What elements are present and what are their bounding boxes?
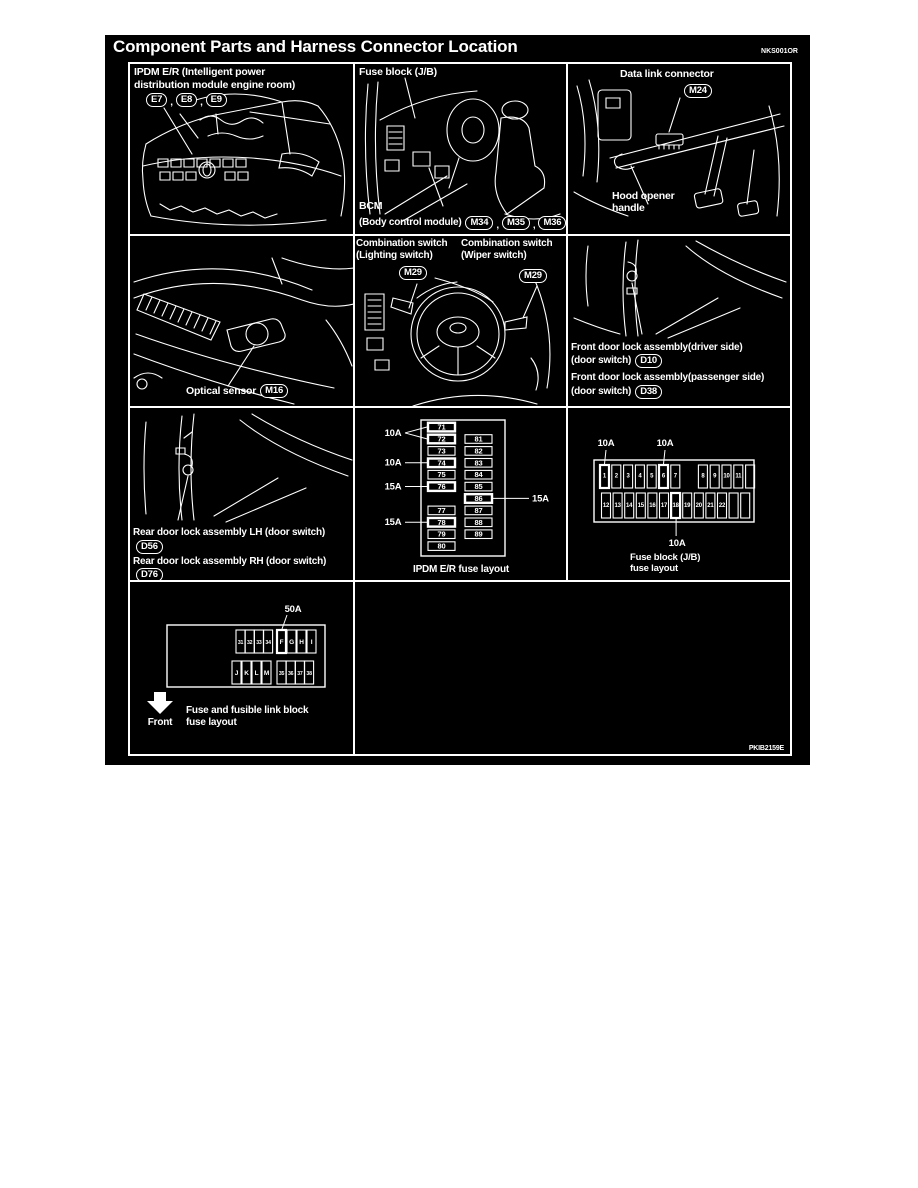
connector-pill-d56: D56: [136, 540, 163, 554]
svg-text:87: 87: [475, 506, 483, 515]
figure-component-location: Component Parts and Harness Connector Lo…: [105, 35, 810, 765]
svg-text:G: G: [289, 639, 294, 646]
front-door-driver-label: Front door lock assembly(driver side): [571, 342, 743, 354]
svg-text:88: 88: [475, 518, 483, 527]
svg-text:10A: 10A: [669, 538, 686, 549]
svg-text:Fuse block (J/B): Fuse block (J/B): [630, 552, 700, 563]
panel-fusible-link: 31323334FGHIJKLM3536373850AFrontFuse and…: [130, 582, 355, 754]
svg-text:85: 85: [475, 482, 483, 491]
cowl-illustration: [130, 236, 355, 406]
front-door-passenger-row: (door switch) D38: [571, 385, 662, 399]
rear-door-rh-label: Rear door lock assembly RH (door switch): [133, 556, 326, 568]
svg-text:34: 34: [265, 640, 271, 646]
svg-text:73: 73: [438, 446, 446, 455]
panel-ipdm-fuse-layout: 7172817382748375847685867787788879898010…: [355, 408, 568, 580]
svg-text:82: 82: [475, 446, 483, 455]
label-line: (Lighting switch): [356, 250, 447, 262]
label-line: distribution module engine room): [134, 79, 295, 92]
rear-door-lh-label: Rear door lock assembly LH (door switch): [133, 527, 325, 539]
ipdm-fuse-diagram: 7172817382748375847685867787788879898010…: [355, 408, 566, 580]
panel-combination-switch: Combination switch (Lighting switch) Com…: [355, 236, 568, 406]
svg-text:37: 37: [297, 671, 303, 677]
svg-text:4: 4: [638, 474, 642, 480]
door-switch-label: (door switch): [571, 386, 631, 398]
bcm-label: BCM: [359, 200, 382, 213]
comma-separator: ,: [496, 221, 499, 230]
label-line: Combination switch: [356, 238, 447, 250]
svg-text:8: 8: [701, 474, 705, 480]
svg-text:15A: 15A: [385, 482, 402, 493]
connector-pill-m36: M36: [538, 216, 566, 230]
svg-text:10A: 10A: [385, 428, 402, 439]
svg-text:10A: 10A: [598, 438, 615, 449]
label-line: (Wiper switch): [461, 250, 552, 262]
svg-text:50A: 50A: [285, 604, 302, 615]
svg-text:78: 78: [438, 518, 446, 527]
panel-ipdm-er: IPDM E/R (Intelligent power distribution…: [130, 64, 355, 234]
svg-text:3: 3: [627, 474, 631, 480]
lighting-switch-label: Combination switch (Lighting switch): [356, 238, 447, 262]
svg-text:22: 22: [719, 503, 726, 509]
doc-code: NKS001OR: [761, 48, 798, 55]
front-door-illustration: [568, 236, 790, 340]
svg-text:83: 83: [475, 458, 483, 467]
svg-text:74: 74: [438, 458, 447, 467]
svg-text:I: I: [311, 639, 313, 646]
svg-text:76: 76: [438, 482, 446, 491]
rear-door-illustration: [130, 408, 355, 526]
optical-sensor-label: Optical sensor: [186, 385, 256, 398]
grid-row-2: Optical sensor M16: [130, 236, 790, 408]
panel-empty: PKIB2159E: [355, 582, 790, 754]
svg-text:15A: 15A: [532, 493, 549, 504]
svg-text:10A: 10A: [657, 438, 674, 449]
fusible-link-diagram: 31323334FGHIJKLM3536373850AFrontFuse and…: [130, 582, 353, 754]
front-door-driver-row: (door switch) D10: [571, 354, 662, 368]
svg-text:M: M: [264, 670, 269, 677]
svg-text:J: J: [235, 670, 239, 677]
fuse-block-label: Fuse block (J/B): [359, 66, 437, 79]
svg-text:5: 5: [650, 474, 654, 480]
connector-pill-wiper: M29: [519, 269, 547, 283]
bcm-row: (Body control module) M34,M35,M36: [359, 216, 566, 230]
svg-text:86: 86: [475, 494, 483, 503]
svg-text:35: 35: [279, 671, 285, 677]
svg-text:Front: Front: [148, 717, 173, 728]
connector-pill-m35: M35: [502, 216, 530, 230]
label-line: handle: [612, 202, 675, 215]
svg-text:2: 2: [615, 474, 619, 480]
ipdm-label: IPDM E/R (Intelligent power distribution…: [134, 66, 295, 91]
pedal-area-illustration: [568, 64, 790, 234]
svg-text:36: 36: [288, 671, 294, 677]
label-line: IPDM E/R (Intelligent power: [134, 66, 295, 79]
panel-rear-door-lock: Rear door lock assembly LH (door switch)…: [130, 408, 355, 580]
svg-text:84: 84: [475, 470, 484, 479]
jb-fuse-diagram: 1234567891011121314151617181920212210A10…: [568, 408, 790, 580]
panel-front-door-lock: Front door lock assembly(driver side) (d…: [568, 236, 790, 406]
svg-text:31: 31: [238, 640, 244, 646]
svg-text:15A: 15A: [385, 517, 402, 528]
svg-text:81: 81: [475, 435, 483, 444]
connector-pill-lighting: M29: [399, 266, 427, 280]
svg-text:15: 15: [638, 503, 645, 509]
svg-text:80: 80: [438, 542, 446, 551]
svg-text:13: 13: [614, 503, 621, 509]
svg-text:20: 20: [696, 503, 703, 509]
connector-pill-d10: D10: [635, 354, 662, 368]
svg-text:F: F: [280, 639, 284, 646]
svg-text:K: K: [244, 670, 249, 677]
comma-separator: ,: [200, 98, 203, 107]
connector-pill-m16: M16: [260, 384, 288, 398]
svg-text:11: 11: [735, 474, 742, 480]
connector-pill-m34: M34: [465, 216, 493, 230]
svg-text:Fuse and fusible link block: Fuse and fusible link block: [186, 705, 309, 716]
svg-text:fuse layout: fuse layout: [630, 563, 679, 574]
comma-separator: ,: [170, 98, 173, 107]
bcm-connector-pills: M34,M35,M36: [465, 216, 566, 230]
svg-text:19: 19: [684, 503, 691, 509]
svg-text:9: 9: [713, 474, 717, 480]
svg-text:18: 18: [672, 503, 679, 509]
figure-title: Component Parts and Harness Connector Lo…: [113, 37, 518, 57]
svg-text:L: L: [255, 670, 259, 677]
svg-text:77: 77: [438, 506, 446, 515]
panel-grid: IPDM E/R (Intelligent power distribution…: [128, 62, 792, 756]
svg-text:21: 21: [707, 503, 714, 509]
grid-row-4: 31323334FGHIJKLM3536373850AFrontFuse and…: [130, 582, 790, 754]
svg-text:7: 7: [674, 474, 678, 480]
svg-text:89: 89: [475, 530, 483, 539]
svg-text:16: 16: [649, 503, 656, 509]
svg-text:10A: 10A: [385, 458, 402, 469]
panel-data-link: Data link connector M24 Hood opener hand…: [568, 64, 790, 234]
door-switch-label: (door switch): [571, 355, 631, 367]
grid-row-1: IPDM E/R (Intelligent power distribution…: [130, 64, 790, 236]
panel-fuse-block-interior: Fuse block (J/B) BCM (Body control modul…: [355, 64, 568, 234]
svg-text:79: 79: [438, 530, 446, 539]
svg-text:6: 6: [662, 474, 666, 480]
svg-text:17: 17: [661, 503, 668, 509]
svg-text:H: H: [299, 639, 304, 646]
svg-text:10: 10: [723, 474, 730, 480]
ipdm-connector-pills: E7,E8,E9: [146, 93, 227, 107]
panel-jb-fuse-layout: 1234567891011121314151617181920212210A10…: [568, 408, 790, 580]
svg-text:38: 38: [306, 671, 312, 677]
interior-illustration: [355, 64, 568, 234]
svg-text:75: 75: [438, 470, 446, 479]
svg-text:fuse layout: fuse layout: [186, 717, 237, 728]
comma-separator: ,: [533, 221, 536, 230]
figure-code: PKIB2159E: [749, 745, 784, 753]
svg-text:32: 32: [247, 640, 253, 646]
connector-pill-e9: E9: [206, 93, 227, 107]
label-line: Combination switch: [461, 238, 552, 250]
connector-pill-m24: M24: [684, 84, 712, 98]
connector-pill-e7: E7: [146, 93, 167, 107]
svg-text:IPDM E/R fuse layout: IPDM E/R fuse layout: [413, 564, 510, 575]
hood-opener-label: Hood opener handle: [612, 190, 675, 215]
svg-text:1: 1: [603, 474, 607, 480]
svg-text:12: 12: [603, 503, 610, 509]
label-line: Hood opener: [612, 190, 675, 203]
bcm-sub-label: (Body control module): [359, 217, 461, 229]
data-link-label: Data link connector: [620, 68, 714, 81]
panel-optical-sensor: Optical sensor M16: [130, 236, 355, 406]
connector-pill-e8: E8: [176, 93, 197, 107]
svg-text:71: 71: [438, 423, 446, 432]
connector-pill-d38: D38: [635, 385, 662, 399]
front-door-passenger-label: Front door lock assembly(passenger side): [571, 372, 764, 384]
svg-text:72: 72: [438, 435, 446, 444]
svg-text:14: 14: [626, 503, 633, 509]
grid-row-3: Rear door lock assembly LH (door switch)…: [130, 408, 790, 582]
optical-sensor-row: Optical sensor M16: [186, 384, 288, 398]
wiper-switch-label: Combination switch (Wiper switch): [461, 238, 552, 262]
svg-text:33: 33: [256, 640, 262, 646]
connector-pill-d76: D76: [136, 568, 163, 580]
